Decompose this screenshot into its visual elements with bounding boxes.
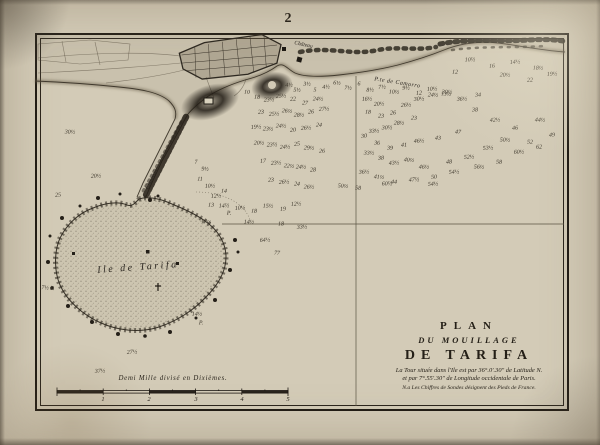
sounding-value: P.: [199, 320, 203, 326]
sounding-value: 23½: [263, 126, 274, 132]
sounding-value: 26½: [282, 108, 293, 115]
sounding-value: 5½: [293, 87, 301, 93]
sounding-value: 22½: [284, 163, 295, 170]
sounding-value: 38: [378, 155, 384, 161]
sounding-value: 24: [294, 181, 300, 187]
sounding-value: 26: [319, 148, 325, 154]
sounding-value: 23: [268, 177, 274, 183]
sounding-value: 16: [489, 63, 495, 69]
sounding-value: 28: [310, 167, 316, 173]
sounding-value: 54½: [449, 169, 460, 176]
sounding-value: 24½: [296, 164, 307, 170]
sounding-value: 7½: [344, 85, 352, 91]
scanned-nautical-chart: 2: [0, 0, 600, 445]
sounding-value: 15½: [263, 203, 273, 209]
sounding-value: 19½: [547, 71, 558, 77]
sounding-value: 30½: [65, 129, 75, 135]
sounding-value: 42½: [490, 117, 501, 123]
sounding-value: 14½: [244, 219, 255, 225]
sounding-value: 24½: [428, 92, 439, 98]
sounding-value: 10½: [389, 89, 400, 95]
sounding-value: 20½: [374, 101, 385, 107]
sounding-value: 18½: [533, 65, 544, 71]
sounding-value: 48: [446, 159, 452, 165]
sounding-value: 8½: [366, 87, 374, 93]
sounding-value: 43: [435, 135, 441, 141]
sounding-value: 25½: [269, 111, 280, 117]
sounding-value: 12½: [291, 201, 302, 207]
sounding-value: 36: [374, 140, 380, 146]
sounding-value: 7½ P.: [41, 285, 55, 292]
sounding-value: 27: [302, 100, 308, 106]
sounding-value: 50: [431, 174, 437, 180]
sounding-value: 64½: [260, 237, 271, 244]
sounding-value: 49: [549, 132, 555, 138]
sounding-value: 46½: [419, 164, 430, 170]
sounding-value: 33½: [297, 224, 308, 230]
sounding-value: 19½: [251, 124, 262, 131]
sounding-value: 47½: [409, 177, 419, 183]
sounding-value: 46: [512, 125, 518, 131]
sounding-value: 62: [536, 144, 542, 150]
sounding-value: 22: [290, 96, 296, 102]
sounding-value: 27½: [127, 349, 138, 356]
sounding-value: 26: [390, 110, 396, 116]
sounding-value: 47: [455, 129, 461, 135]
sounding-value: 25: [294, 141, 300, 147]
sounding-value: 6½: [333, 80, 341, 86]
sounding-value: 10½: [205, 183, 215, 189]
sounding-value: 37½: [95, 368, 106, 374]
sounding-value: 26½: [301, 125, 312, 131]
sounding-value: 24½: [280, 144, 291, 150]
sounding-value: 20½: [500, 72, 510, 78]
sounding-value: 26½: [279, 179, 290, 186]
sounding-value: 23½: [267, 142, 277, 148]
sounding-value: 52½: [464, 154, 475, 160]
sounding-value: 33½: [369, 128, 380, 134]
sounding-value: 41½: [374, 174, 385, 181]
sounding-value: 52: [527, 139, 533, 145]
sounding-value: 26½: [304, 184, 314, 190]
sounding-value: 60½: [514, 149, 524, 155]
sounding-value: 14½: [192, 311, 203, 317]
sounding-value: 36½: [457, 96, 467, 102]
sounding-value: 30½: [414, 96, 425, 103]
sounding-value: 77: [274, 250, 280, 256]
sounding-value: 40½: [404, 157, 415, 164]
sounding-value: 12½: [211, 193, 222, 199]
sounding-value: 4½: [285, 82, 293, 88]
sounding-value: 38: [472, 107, 478, 113]
sounding-value: 39: [387, 145, 393, 151]
sounding-value: 54½: [428, 181, 439, 187]
sounding-value: 11: [197, 176, 203, 182]
sounding-value: 13: [208, 202, 214, 208]
sounding-value: 23½: [271, 160, 282, 166]
sounding-value: 50½: [338, 183, 349, 190]
sounding-value: 23: [378, 113, 384, 119]
sounding-value: 19: [280, 206, 286, 212]
sounding-value: 18: [254, 94, 260, 100]
sounding-value: 7½: [378, 84, 386, 90]
sounding-value: 29½: [304, 145, 315, 151]
sounding-value: 9½: [201, 166, 209, 172]
sounding-value: 34: [475, 92, 481, 98]
sounding-value: 17: [260, 158, 266, 164]
sounding-value: 26½: [401, 102, 412, 108]
sounding-value: 4½: [322, 84, 330, 90]
sounding-value: 14½: [510, 59, 521, 66]
sounding-value: 18: [278, 221, 284, 227]
sounding-value: 30: [361, 133, 367, 139]
sounding-value: 44½: [535, 117, 546, 123]
sounding-value: 3½: [303, 81, 311, 87]
sounding-value: 43½: [389, 160, 400, 166]
sounding-value: 58: [355, 185, 361, 191]
sounding-value: 24½: [313, 96, 323, 102]
sounding-value: 9½: [402, 85, 410, 91]
sounding-value: 26: [308, 109, 314, 115]
sounding-value: 25: [55, 192, 61, 198]
sounding-value: 28½: [294, 112, 305, 118]
sounding-value: 36½: [359, 169, 370, 175]
sounding-value: 10½: [465, 57, 475, 63]
sounding-value: 30½: [442, 89, 452, 95]
sounding-value: 33½: [364, 150, 374, 156]
sounding-value: 24½: [276, 123, 286, 129]
sounding-value: 14½: [219, 203, 229, 209]
sounding-value: P.: [227, 210, 232, 216]
sounding-value: 56½: [474, 164, 485, 170]
sounding-value: 23: [258, 109, 264, 115]
sounding-value: 23: [411, 115, 417, 121]
sounding-value: 28½: [394, 120, 405, 126]
sounding-value: 50½: [500, 137, 511, 143]
sounding-value: 60½: [382, 181, 392, 187]
sounding-value: 20½: [254, 140, 265, 146]
sounding-value: 20½: [91, 173, 101, 179]
sounding-value: 6: [358, 81, 361, 87]
sounding-value: 22: [527, 77, 533, 83]
sounding-value: 17½: [201, 219, 212, 226]
sounding-value: 41: [401, 142, 407, 148]
sounding-value: 16½: [362, 96, 372, 102]
sounding-value: 18: [251, 208, 257, 214]
sounding-value: 18: [365, 109, 371, 115]
sounding-value: 23½: [264, 97, 274, 103]
sounding-value: 25½: [276, 93, 287, 99]
sounding-value: 30½: [382, 125, 392, 131]
sounding-value: 12: [452, 69, 458, 75]
sounding-value: 14: [221, 188, 227, 194]
sounding-value: 20: [290, 127, 296, 133]
sounding-value: 24: [316, 122, 322, 128]
sounding-value: 7: [194, 159, 197, 165]
sounding-value: 27½: [319, 106, 330, 112]
sounding-value: 53½: [483, 145, 494, 152]
sounding-value: 10: [244, 89, 250, 95]
soundings-layer: 4½5½3½54½6½7½68½7½10½9½1210½13½1210½1614…: [0, 0, 600, 445]
labels-layer: Ile de Tarifa P.te de Camorro Château Ch…: [0, 0, 600, 445]
sounding-value: 46½: [414, 138, 425, 144]
sounding-value: 58: [496, 159, 502, 165]
sounding-value: 5: [313, 87, 316, 93]
sounding-value: 10½: [235, 205, 246, 212]
